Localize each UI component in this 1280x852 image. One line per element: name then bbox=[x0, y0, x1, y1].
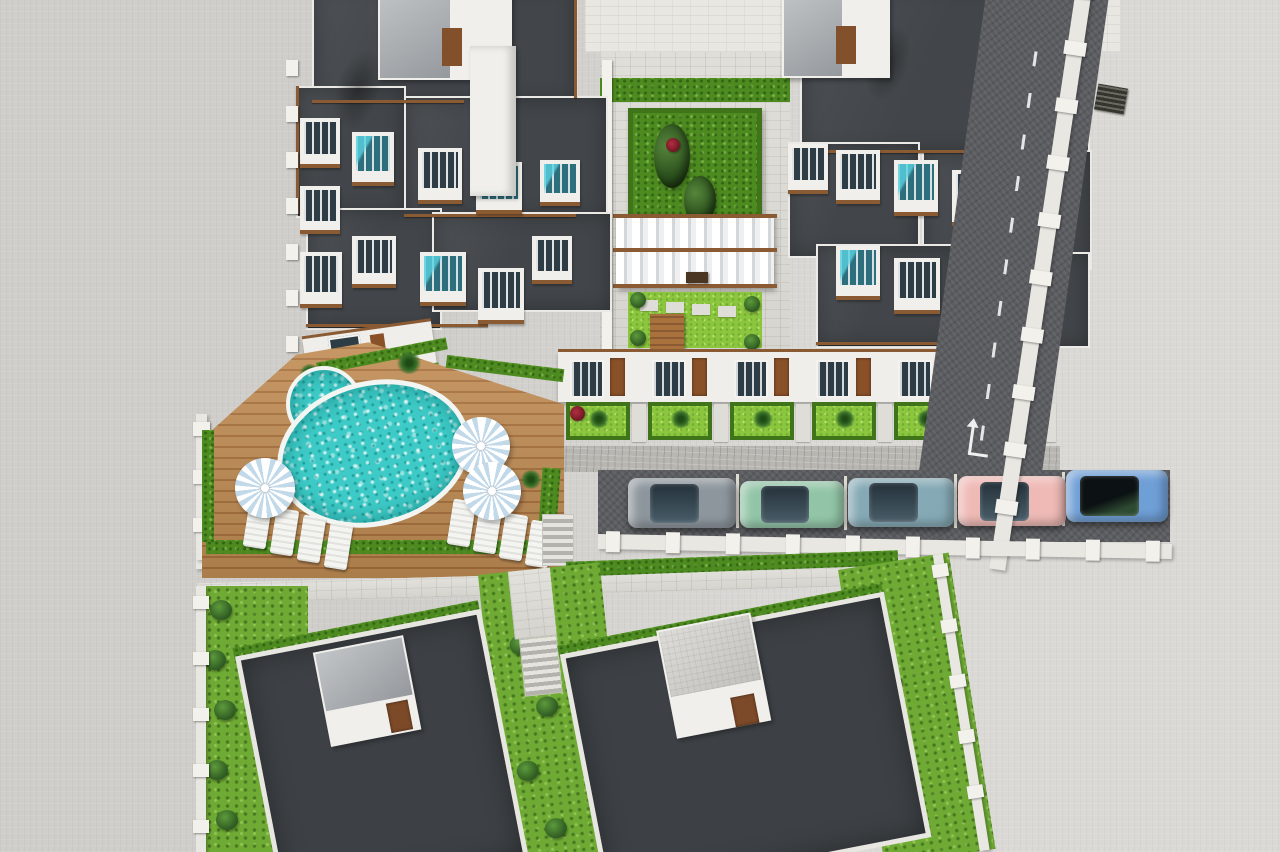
parking-boundary-wall-pillar bbox=[786, 534, 800, 555]
groundfloor-window bbox=[816, 360, 850, 398]
lower-left-building-tower-cap bbox=[315, 638, 412, 711]
window-glass bbox=[898, 164, 934, 200]
parking-boundary-wall-pillar bbox=[966, 537, 980, 558]
groundfloor-window bbox=[570, 360, 604, 398]
window-sill bbox=[300, 304, 342, 308]
lower-left-garden-wall-pillar bbox=[193, 764, 209, 777]
lower-mid-garden-bush bbox=[544, 817, 568, 839]
deck-palm bbox=[520, 470, 542, 489]
roof-tower-cap bbox=[784, 0, 842, 76]
lower-right-garden-wall-pillar bbox=[940, 618, 958, 633]
parking-boundary-wall-pillar bbox=[606, 531, 620, 552]
lower-left-garden-bush bbox=[216, 810, 238, 830]
front-garden-palm bbox=[588, 410, 610, 428]
left-block-wall-pillar bbox=[286, 106, 298, 122]
window-glass bbox=[482, 272, 520, 308]
car-windows bbox=[869, 483, 918, 521]
parking-boundary-wall-pillar bbox=[666, 532, 680, 553]
stepping-stone bbox=[692, 304, 710, 315]
car-windows bbox=[1080, 476, 1139, 517]
topiary-bush bbox=[630, 330, 646, 346]
lower-left-garden-bush bbox=[210, 600, 232, 620]
courtyard-flower-bush bbox=[666, 138, 680, 152]
lower-left-garden-wall bbox=[196, 586, 206, 852]
lower-left-garden-wall-pillar bbox=[193, 708, 209, 721]
courtyard-hedge-row bbox=[600, 78, 790, 102]
left-block-balcony-unit bbox=[418, 148, 462, 204]
topiary-bush bbox=[744, 296, 760, 312]
right-boundary-wall-pillar bbox=[995, 499, 1019, 516]
window-sill bbox=[788, 190, 828, 194]
window-glass bbox=[304, 190, 336, 221]
pool-umbrella bbox=[463, 462, 521, 520]
pergola-beam bbox=[613, 214, 777, 218]
right-block-balcony-unit bbox=[836, 246, 880, 300]
stepping-stone bbox=[666, 302, 684, 313]
front-garden-palm bbox=[834, 410, 856, 428]
left-block-balcony-unit bbox=[540, 160, 580, 206]
lower-mid-garden-path bbox=[508, 567, 557, 639]
groundfloor-door bbox=[856, 358, 871, 396]
window-sill bbox=[836, 296, 880, 300]
window-glass bbox=[422, 152, 458, 188]
right-boundary-wall-pillar bbox=[1029, 269, 1053, 286]
window-sill bbox=[476, 210, 522, 214]
window-sill bbox=[352, 284, 396, 288]
lower-left-garden-wall-pillar bbox=[193, 820, 209, 833]
left-block-balcony-unit bbox=[352, 132, 394, 186]
roof-tower-door bbox=[836, 26, 856, 64]
right-boundary-wall-pillar bbox=[1020, 327, 1044, 344]
groundfloor-window bbox=[898, 360, 932, 398]
arrow-head bbox=[967, 417, 980, 428]
left-block-wall-pillar bbox=[286, 244, 298, 260]
left-block-balcony-unit bbox=[420, 252, 466, 306]
window-sill bbox=[352, 182, 394, 186]
left-block-wall-pillar bbox=[286, 60, 298, 76]
lower-right-building-tower-cap bbox=[658, 615, 761, 697]
aerial-3d-render bbox=[0, 0, 1280, 852]
roof-tower-cap bbox=[380, 0, 450, 78]
window-glass bbox=[792, 148, 824, 180]
parking-separator bbox=[736, 474, 739, 528]
left-block-wall-pillar bbox=[286, 290, 298, 306]
parking-boundary-wall-pillar bbox=[1146, 541, 1160, 562]
window-glass bbox=[304, 256, 338, 292]
car-windows bbox=[761, 486, 809, 523]
lower-right-garden-wall-pillar bbox=[958, 729, 976, 744]
window-sill bbox=[300, 230, 340, 234]
window-sill bbox=[300, 164, 340, 168]
left-block-balcony-railing bbox=[574, 0, 577, 98]
window-sill bbox=[836, 200, 880, 204]
lower-left-garden-wall-pillar bbox=[193, 596, 209, 609]
parking-boundary-wall-pillar bbox=[726, 533, 740, 554]
lower-right-garden-wall-pillar bbox=[966, 784, 984, 799]
front-walkway bbox=[714, 404, 728, 442]
lower-left-garden-bush bbox=[214, 700, 236, 720]
lower-right-building-roof-tower bbox=[656, 612, 771, 738]
left-block-balcony-unit bbox=[478, 268, 524, 324]
left-block-stair-core bbox=[470, 46, 516, 196]
lower-right-garden-wall-pillar bbox=[949, 673, 967, 688]
deck-hedge bbox=[202, 430, 214, 542]
front-garden-palm bbox=[752, 410, 774, 428]
lower-right-garden-wall-pillar bbox=[931, 563, 949, 578]
window-sill bbox=[420, 302, 466, 306]
right-block-balcony-unit bbox=[788, 144, 828, 194]
stepping-stone bbox=[718, 306, 736, 317]
window-glass bbox=[840, 154, 876, 189]
right-boundary-wall-pillar bbox=[1055, 97, 1079, 114]
left-block-wall-pillar bbox=[286, 336, 298, 352]
left-block-wall-pillar bbox=[286, 152, 298, 168]
groundfloor-door bbox=[774, 358, 789, 396]
front-walkway bbox=[878, 404, 892, 442]
pool-umbrella bbox=[235, 458, 295, 518]
lower-left-building-roof-tower bbox=[313, 635, 422, 747]
lower-left-building-tower-door bbox=[386, 700, 413, 734]
right-boundary-wall-pillar bbox=[1063, 40, 1087, 57]
parking-separator bbox=[844, 476, 847, 530]
parking-separator bbox=[954, 474, 957, 528]
left-block-balcony-unit bbox=[532, 236, 572, 284]
topiary-bush bbox=[630, 292, 646, 308]
street-bench bbox=[1094, 84, 1128, 115]
parked-car bbox=[848, 478, 954, 527]
right-block-balcony-unit bbox=[894, 258, 940, 314]
window-sill bbox=[894, 212, 938, 216]
window-glass bbox=[544, 164, 576, 193]
arrow-foot bbox=[968, 452, 988, 458]
left-block-wall-pillar bbox=[286, 198, 298, 214]
left-block-balcony-unit bbox=[300, 118, 340, 168]
parking-boundary-wall-pillar bbox=[906, 536, 920, 557]
left-block-balcony-unit bbox=[300, 186, 340, 234]
left-block-balcony-unit bbox=[352, 236, 396, 288]
topiary-bush bbox=[744, 334, 760, 350]
front-walkway bbox=[796, 404, 810, 442]
deck-palm bbox=[396, 352, 422, 374]
lower-left-garden-wall-pillar bbox=[193, 652, 209, 665]
car-windows bbox=[650, 484, 700, 523]
window-glass bbox=[536, 240, 568, 271]
left-block-balcony-unit bbox=[300, 252, 342, 308]
window-sill bbox=[894, 310, 940, 314]
parking-boundary-wall-pillar bbox=[1086, 540, 1100, 561]
groundfloor-door bbox=[692, 358, 707, 396]
pergola-beam bbox=[613, 248, 777, 252]
groundfloor-window bbox=[734, 360, 768, 398]
deck-stairs bbox=[542, 514, 574, 566]
right-block-balcony-unit bbox=[836, 150, 880, 204]
lower-left-garden-bush bbox=[206, 760, 228, 780]
parked-car bbox=[1066, 470, 1168, 522]
right-block-roof-tower bbox=[782, 0, 890, 78]
right-boundary-wall-pillar bbox=[1003, 441, 1027, 458]
pergola-beam bbox=[613, 284, 777, 288]
groundfloor-window bbox=[652, 360, 686, 398]
front-walkway bbox=[632, 404, 646, 442]
left-block-balcony-railing bbox=[312, 100, 464, 103]
parking-boundary-wall-pillar bbox=[1026, 538, 1040, 559]
arrow-stem bbox=[968, 426, 975, 454]
right-boundary-wall-pillar bbox=[1012, 384, 1036, 401]
window-glass bbox=[840, 250, 876, 285]
right-boundary-wall-pillar bbox=[1046, 155, 1070, 172]
window-glass bbox=[356, 240, 392, 273]
window-sill bbox=[418, 200, 462, 204]
right-boundary-wall-pillar bbox=[1037, 212, 1061, 229]
window-glass bbox=[356, 136, 390, 171]
courtyard-back-wall bbox=[600, 0, 790, 52]
courtyard-tree bbox=[654, 124, 690, 188]
window-sill bbox=[478, 320, 524, 324]
left-block-balcony-railing bbox=[404, 214, 576, 217]
window-sill bbox=[532, 280, 572, 284]
window-sill bbox=[540, 202, 580, 206]
lower-right-building-tower-door bbox=[730, 693, 759, 727]
parked-car bbox=[740, 481, 844, 528]
pergola-seating bbox=[686, 272, 708, 283]
lower-mid-garden-bush bbox=[535, 695, 559, 717]
right-block-balcony-unit bbox=[894, 160, 938, 216]
groundfloor-door bbox=[610, 358, 625, 396]
roof-tower-door bbox=[442, 28, 462, 66]
parked-car bbox=[628, 478, 736, 528]
road-turn-arrow bbox=[951, 416, 996, 463]
window-glass bbox=[304, 122, 336, 154]
front-garden-flower bbox=[570, 406, 585, 421]
front-garden-palm bbox=[670, 410, 692, 428]
window-glass bbox=[898, 262, 936, 298]
window-glass bbox=[424, 256, 462, 291]
